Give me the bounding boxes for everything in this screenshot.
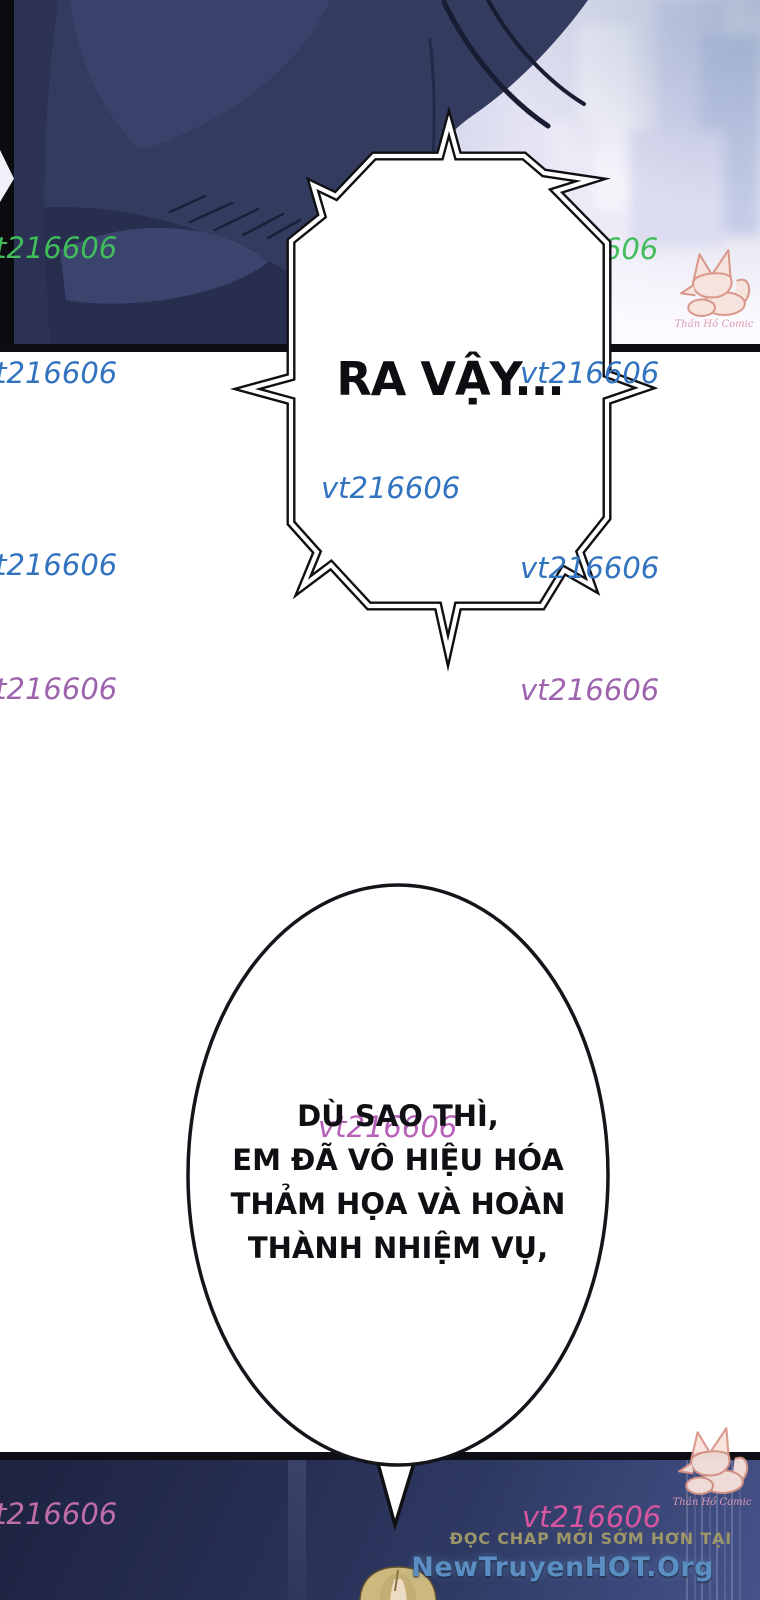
fox-logo-icon [668,1424,756,1496]
watermark: vt216606 [0,1497,117,1531]
watermark: vt216606 [321,471,460,505]
fox-credit: Thần Hồ Comic [666,1497,758,1508]
scanlation-logo: Thần Hồ Comic [666,1424,758,1508]
fox-logo-icon [670,246,758,318]
promo-text: ĐỌC CHAP MỚI SỚM HƠN TẠI [450,1529,732,1548]
watermark: vt216606 [0,672,117,706]
dialogue-line: THÀNH NHIỆM VỤ, [188,1226,608,1270]
dialogue-line: THẢM HỌA VÀ HOÀN [188,1182,608,1226]
watermark: vt216606 [520,551,659,585]
scanlation-logo: Thần Hồ Comic [668,246,760,330]
comic-page: vt216606 vt216606 vt216606 vt216606 vt21… [0,0,760,1600]
site-name: NewTruyenHOT.Org [411,1552,714,1583]
fox-credit: Thần Hồ Comic [668,319,760,330]
bubble1-dialogue: RA VẬY... [290,352,610,406]
watermark: vt216606 [0,548,117,582]
speech-bubbles-layer [0,0,760,1600]
watermark: vt216606 [520,673,659,707]
bubble2-dialogue: DÙ SAO THÌ, EM ĐÃ VÔ HIỆU HÓA THẢM HỌA V… [188,1094,608,1270]
dialogue-line: EM ĐÃ VÔ HIỆU HÓA [188,1138,608,1182]
watermark: vt216606 [0,356,117,390]
dialogue-line: DÙ SAO THÌ, [188,1094,608,1138]
